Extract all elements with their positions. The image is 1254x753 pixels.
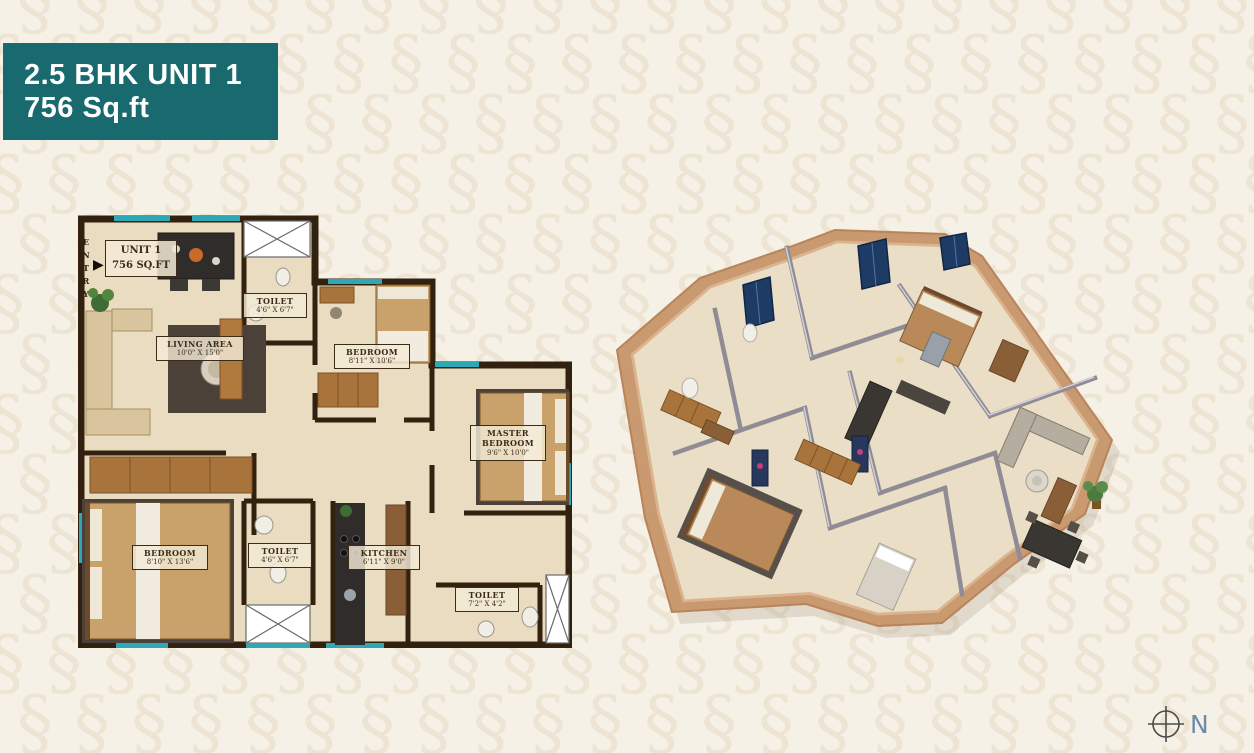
compass-icon [1148, 706, 1184, 742]
room-label-bedroom-top: BEDROOM 8'11" X 10'6" [334, 344, 410, 369]
coffee-table-top [1032, 476, 1042, 486]
entry-arrow-icon: ▶ [93, 257, 104, 271]
title-line-1: 2.5 BHK UNIT 1 [24, 59, 278, 92]
room-label-master-bedroom: MASTER BEDROOM 9'6" X 10'0" [470, 425, 546, 461]
unit-info-box: UNIT 1 756 SQ.FT [105, 240, 177, 277]
room-label-kitchen: KITCHEN 6'11" X 9'0" [348, 545, 420, 570]
floor-plan-3d-drawing [590, 198, 1254, 663]
compass-north-label: N [1190, 710, 1209, 739]
room-label-living-area: LIVING AREA 10'0" X 15'0" [156, 336, 244, 361]
room-label-bedroom-bottom: BEDROOM 8'10" X 13'6" [132, 545, 208, 570]
entry-label: ENTRY [81, 237, 91, 302]
bedside-lamp [896, 356, 904, 364]
unit-box-line-2: 756 SQ.FT [106, 259, 176, 274]
floor-plan-2d: UNIT 1 756 SQ.FT ENTRY ▶ LIVING AREA 10'… [78, 213, 572, 648]
floor-plan-3d [590, 198, 1254, 663]
title-card: 2.5 BHK UNIT 1 756 Sq.ft [3, 43, 278, 140]
room-label-toilet-bottom: TOILET 7'2" X 4'2" [455, 587, 519, 612]
unit-box-line-1: UNIT 1 [106, 244, 176, 259]
compass: N [1140, 698, 1235, 748]
room-label-toilet-top: TOILET 4'6" X 6'7" [243, 293, 307, 318]
title-line-2: 756 Sq.ft [24, 92, 278, 125]
room-label-toilet-middle: TOILET 4'6" X 6'7" [248, 543, 312, 568]
